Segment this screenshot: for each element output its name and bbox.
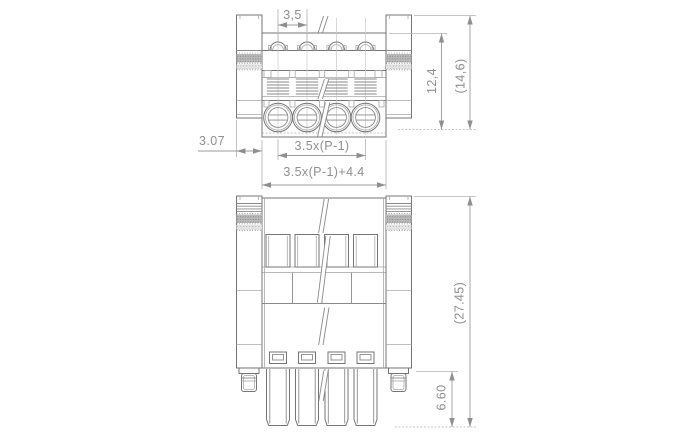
- contact-tower-4: [354, 235, 378, 268]
- dim-pitch-label: 3,5: [283, 8, 302, 22]
- dim-pin-length: 6.60: [416, 372, 458, 428]
- dim-pin-length-label: 6.60: [435, 385, 449, 411]
- top-view-right-flange: [386, 15, 412, 118]
- pin-shroud-1: [267, 369, 290, 426]
- knurl-band: [237, 214, 263, 231]
- dim-edge-offset-label: 3.07: [199, 134, 225, 148]
- dim-center-span: 3.5x(P-1): [278, 139, 366, 160]
- latch-window-1: [270, 352, 287, 364]
- dim-body-height: 12,4: [389, 34, 447, 130]
- front-view-right-flange: [386, 196, 412, 392]
- front-view-break-marks: [317, 199, 330, 401]
- contact-tower-2: [295, 235, 319, 268]
- dim-overall-height-top-label: (14,6): [454, 58, 468, 93]
- screw-tip: [239, 368, 259, 392]
- pin-shroud-3: [325, 369, 348, 426]
- front-view: (27.45) 6.60: [237, 196, 477, 427]
- dim-center-span-label: 3.5x(P-1): [294, 139, 349, 153]
- contact-tower-1: [266, 235, 290, 268]
- latch-window-3: [328, 352, 345, 364]
- dim-overall-width-label: 3.5x(P-1)+4.4: [283, 165, 364, 179]
- pin-shroud-4: [354, 369, 377, 426]
- dim-overall-height-front-label: (27.45): [453, 282, 467, 324]
- connector-dimension-drawing: 3,5 12,4 (14,6) 3.07 3.5x(P-1): [0, 0, 680, 440]
- pin-shroud-2: [296, 369, 319, 426]
- knurl-band: [386, 214, 412, 231]
- screw-tip: [389, 368, 409, 392]
- dim-body-height-label: 12,4: [425, 68, 439, 94]
- top-view-left-flange: [237, 15, 263, 118]
- latch-window-2: [299, 352, 316, 364]
- latch-window-4: [357, 352, 374, 364]
- knurl-band: [386, 53, 412, 70]
- drawing-sheet: 3,5 12,4 (14,6) 3.07 3.5x(P-1): [0, 0, 680, 440]
- screw-position-4: [351, 18, 380, 135]
- front-view-left-flange: [237, 196, 263, 392]
- dim-pitch: 3,5: [278, 8, 307, 43]
- knurl-band: [237, 53, 263, 70]
- dim-edge-offset: 3.07: [198, 120, 262, 190]
- top-view: 3,5 12,4 (14,6) 3.07 3.5x(P-1): [198, 8, 476, 190]
